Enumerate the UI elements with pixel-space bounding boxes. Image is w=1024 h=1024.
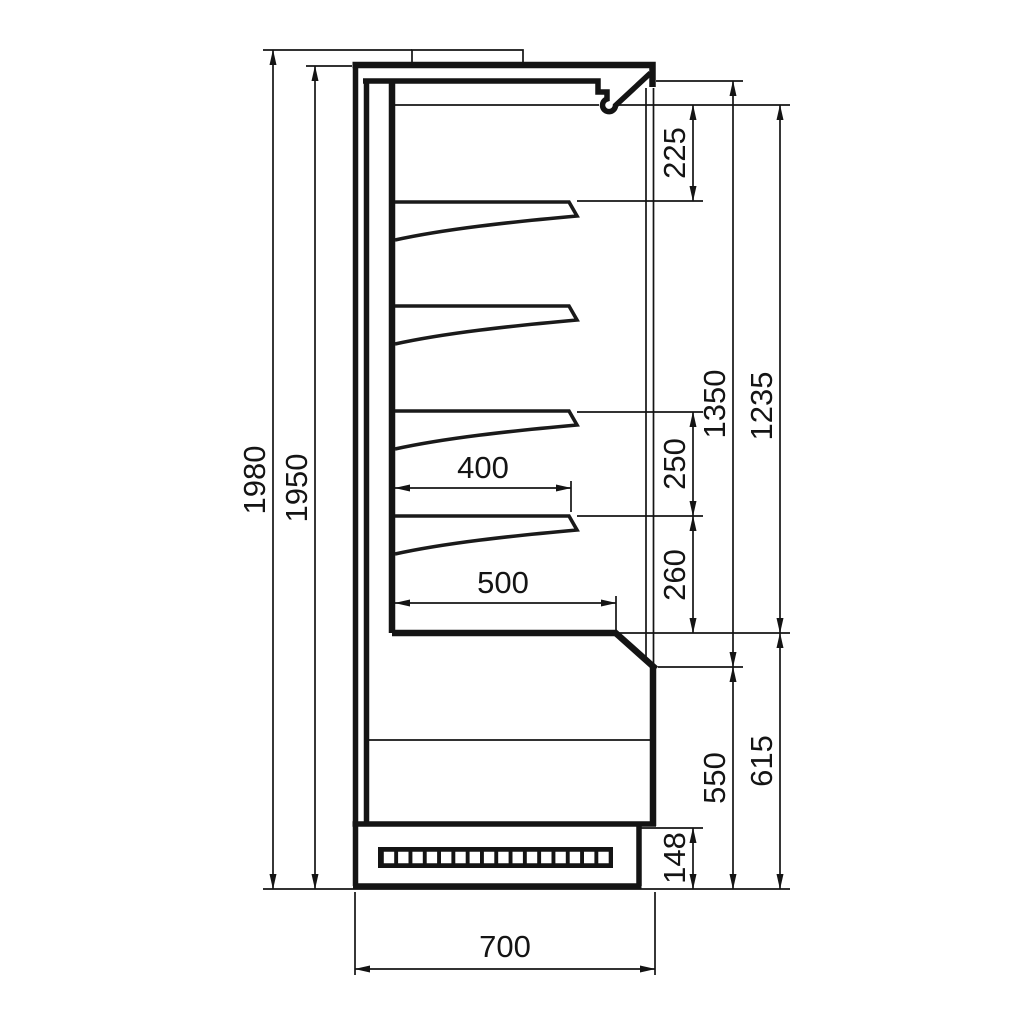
extension-lines	[263, 50, 790, 975]
dimension-lines	[273, 50, 780, 969]
deck-nose-diagonal	[614, 632, 656, 670]
dim-case-height: 1950	[279, 454, 314, 523]
technical-drawing-page: 1980 1950 225 250 260 148 1350 550 1235 …	[0, 0, 1024, 1024]
side-section-drawing: 1980 1950 225 250 260 148 1350 550 1235 …	[0, 0, 1024, 1024]
dim-display-height: 1235	[744, 372, 779, 441]
canopy-inner-profile	[363, 73, 651, 112]
shelves	[395, 202, 577, 554]
shelf-2	[395, 306, 577, 344]
dim-shelf-depth: 400	[457, 450, 509, 485]
top-cap	[412, 50, 523, 62]
dimension-labels: 1980 1950 225 250 260 148 1350 550 1235 …	[237, 127, 779, 964]
shelf-4	[395, 516, 577, 554]
shelf-3	[395, 411, 577, 449]
dim-plinth-height: 148	[657, 832, 692, 884]
dim-overall-depth: 700	[479, 929, 531, 964]
shelf-1	[395, 202, 577, 240]
ventilation-grille	[378, 847, 613, 868]
dim-overall-height: 1980	[237, 446, 272, 515]
dim-shelf-pitch: 250	[657, 438, 692, 490]
dim-canopy-to-first-shelf: 225	[657, 127, 692, 179]
dim-opening-height: 1350	[697, 370, 732, 439]
dim-shelf-to-deck: 260	[657, 549, 692, 601]
dim-deck-depth: 500	[477, 565, 529, 600]
dim-lower-section-height: 615	[744, 735, 779, 787]
dim-lower-front-height: 550	[697, 752, 732, 804]
